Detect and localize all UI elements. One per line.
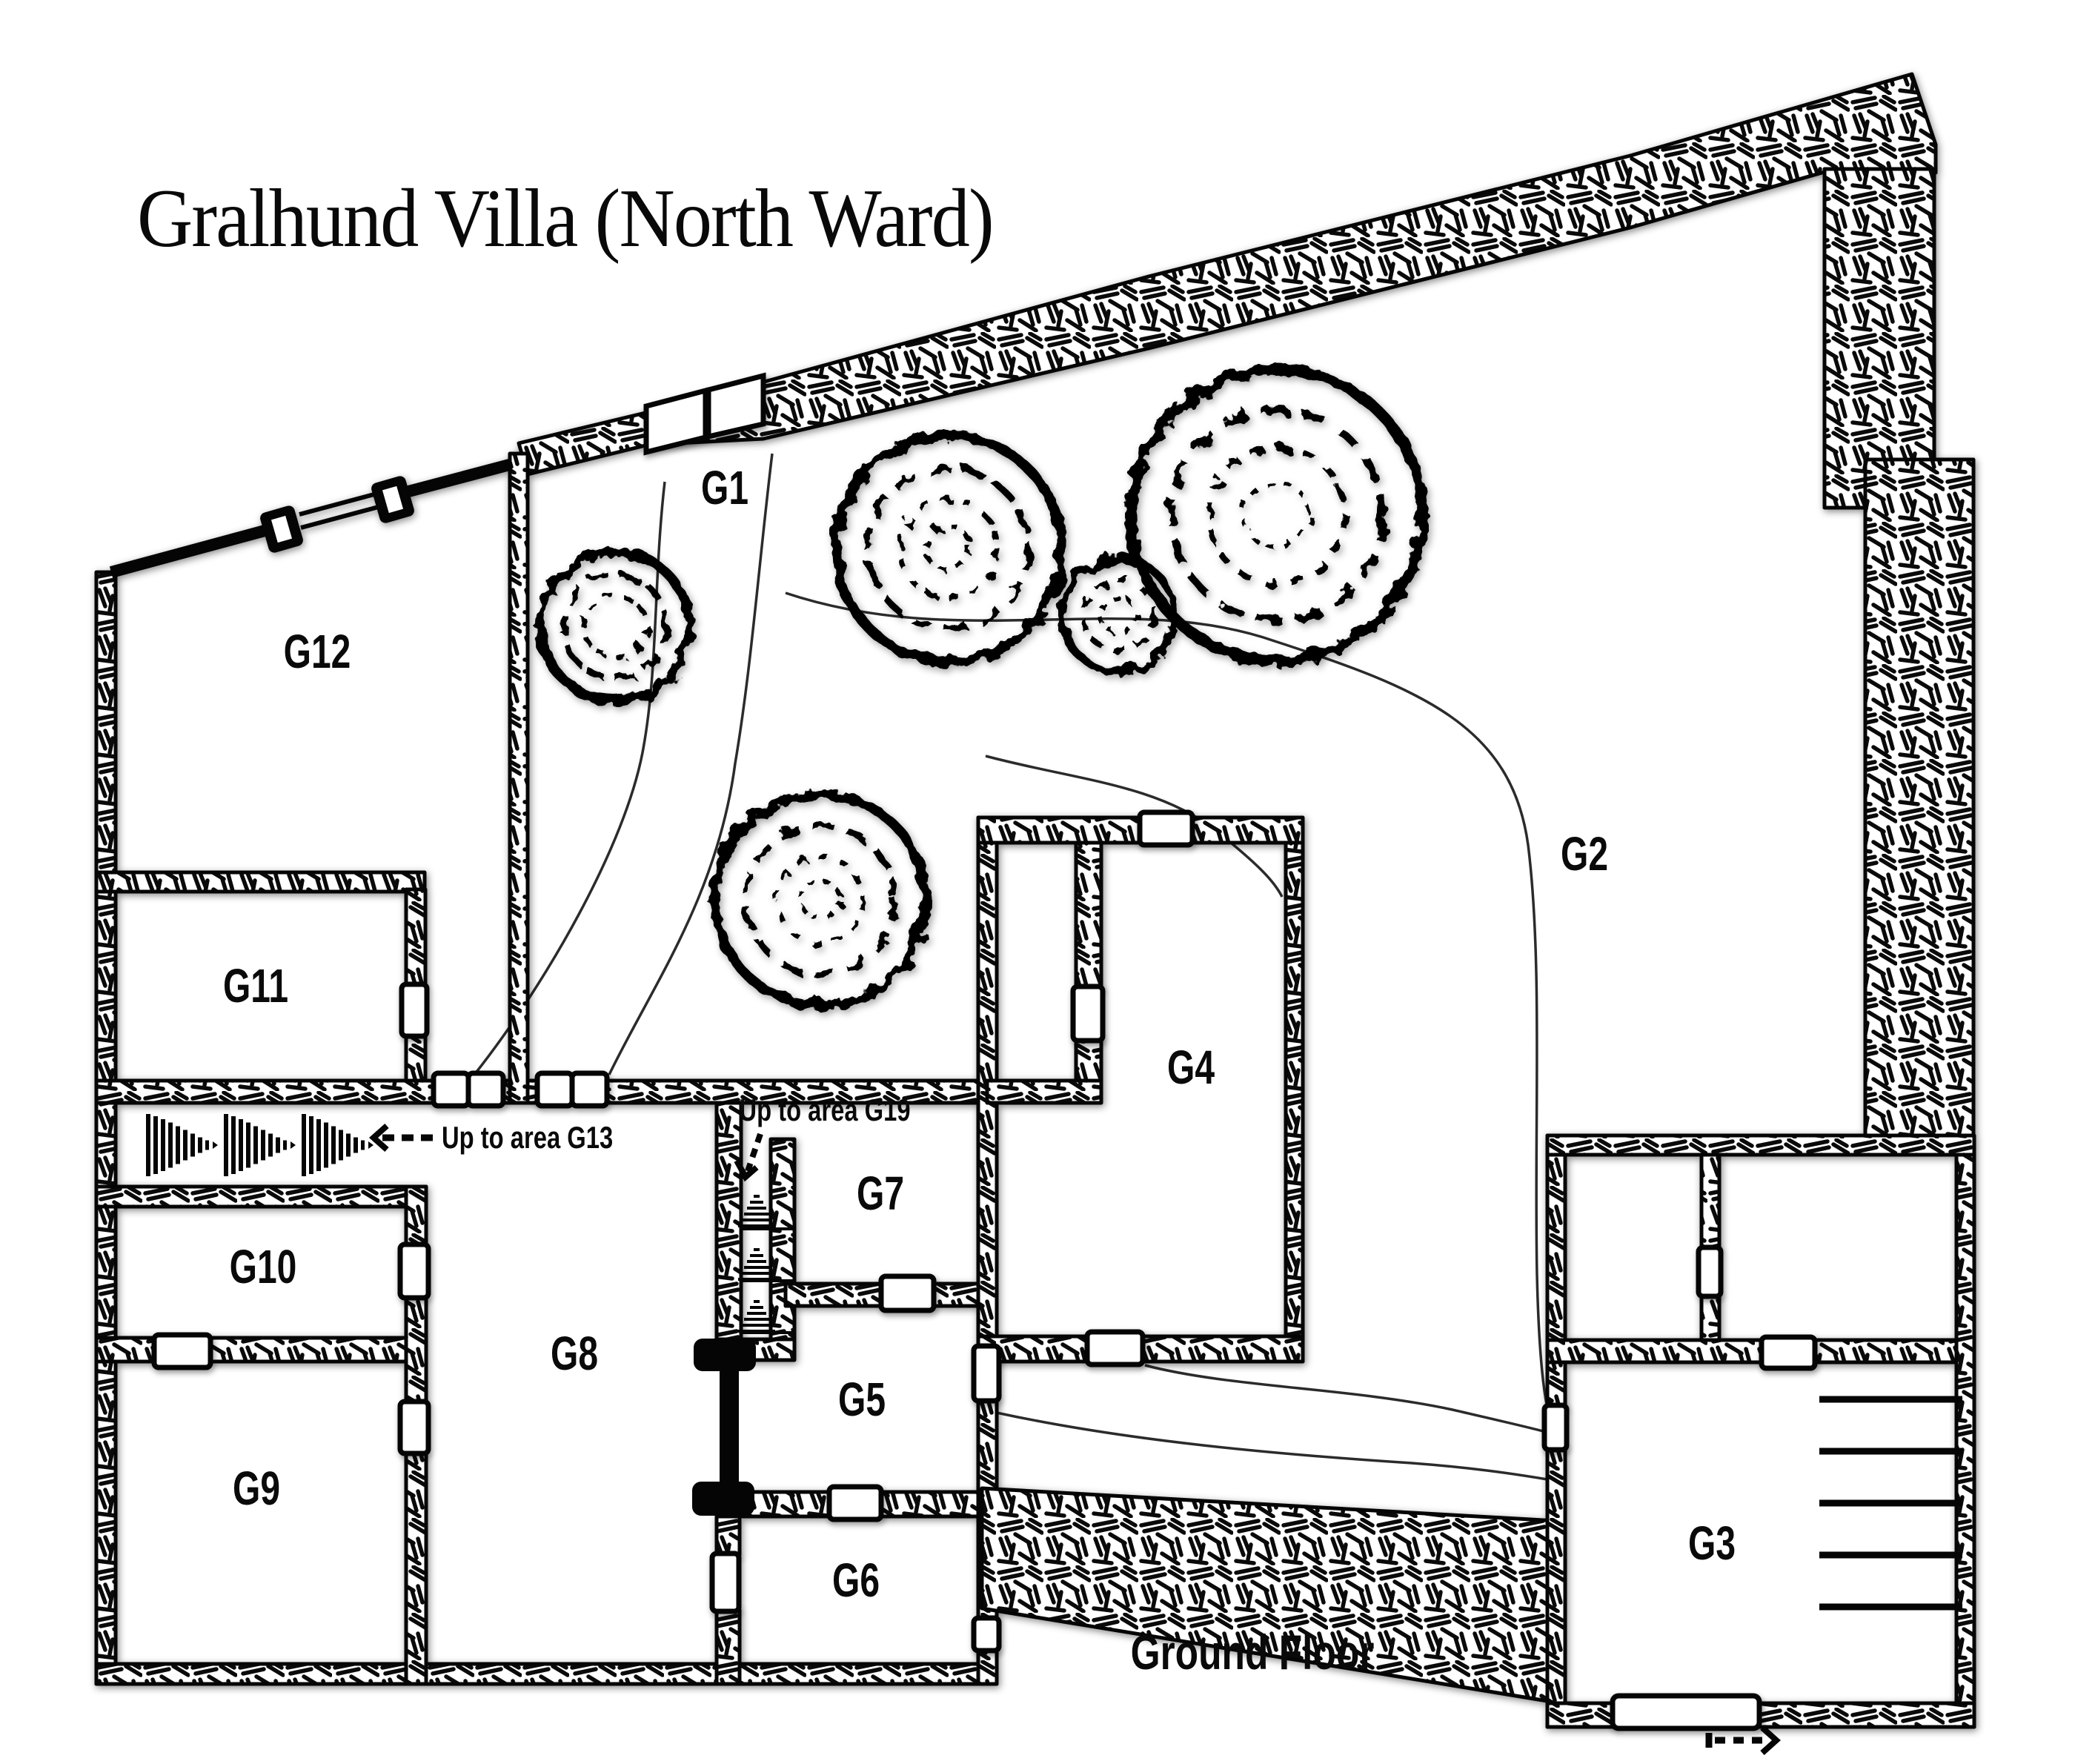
door-g4-south (1087, 1332, 1143, 1365)
door-garden-corridor (537, 1073, 572, 1106)
tree-icon (541, 552, 689, 700)
door-g9 (400, 1402, 428, 1453)
door-g5-g6 (829, 1487, 881, 1519)
door-g3-rooms (1699, 1247, 1721, 1296)
wall-g6-west (717, 1516, 740, 1555)
door-g11 (402, 984, 427, 1036)
room-label-g6: G6 (832, 1554, 880, 1606)
wall-g7-g5 (786, 1284, 883, 1306)
garden-fence (111, 463, 515, 572)
door-g6-east (974, 1618, 999, 1651)
wall-g10-g9 (210, 1338, 426, 1362)
door-garden-corridor (468, 1073, 503, 1106)
wall-g3-west (1547, 1447, 1565, 1727)
wall-g3-west (1547, 1135, 1565, 1408)
wall-g5-g6 (880, 1492, 987, 1516)
floor-caption: Ground Floor (1131, 1625, 1375, 1680)
room-label-g3: G3 (1688, 1516, 1736, 1569)
room-label-g10: G10 (230, 1240, 297, 1293)
outer-wall-east (1825, 169, 1934, 508)
wall-g3-south (1758, 1703, 1974, 1727)
wall-g3-rooms-south (1813, 1340, 1974, 1362)
wall-garden-west (510, 454, 528, 1103)
wall-g10-g9 (96, 1338, 154, 1362)
wall-g4-north (978, 818, 1141, 843)
room-label-g11: G11 (223, 959, 288, 1012)
tree-icon (1062, 559, 1175, 672)
wall-g3-rooms-south (1547, 1340, 1764, 1362)
wall-shaft-west (717, 1103, 741, 1356)
tree-icon (836, 436, 1061, 661)
wall-g12-g11 (96, 872, 425, 892)
wall-g4-closet (1076, 1038, 1101, 1081)
room-label-g7: G7 (857, 1167, 904, 1219)
wall-g3-south (1547, 1703, 1616, 1727)
wall-g10-g8 (406, 1298, 426, 1402)
walls (96, 74, 1974, 1727)
arrow-to-g13 (373, 1126, 434, 1150)
outer-wall-east (1865, 460, 1973, 1137)
wall-g10-g8 (406, 1187, 426, 1244)
door-g6-west (712, 1554, 739, 1611)
wall-g3-rooms-divider (1701, 1295, 1719, 1340)
room-label-g8: G8 (551, 1327, 598, 1379)
door-garden-corridor (572, 1073, 607, 1106)
tree-icon (1132, 370, 1422, 660)
room-label-g1: G1 (701, 461, 748, 514)
wall-house-east (978, 1649, 997, 1684)
house-south-wall (96, 1664, 997, 1684)
wall-g3-north (1547, 1135, 1974, 1155)
gate-post-icon (370, 474, 416, 524)
path-line (1145, 1365, 1546, 1432)
wall-g11-east (406, 1036, 425, 1081)
path-line (997, 1413, 1547, 1479)
door-g3-south (1613, 1696, 1759, 1728)
room-label-g2: G2 (1561, 827, 1608, 880)
outer-wall-west (96, 572, 116, 1684)
annotation-up-g13: Up to area G13 (442, 1120, 613, 1155)
door-g7-g5 (881, 1276, 934, 1310)
wall-g4-east (1286, 843, 1303, 1362)
wall-g4-closet (1076, 843, 1101, 989)
main-gate-door (708, 376, 763, 437)
door-g5-east (974, 1346, 999, 1401)
floor-plan-map: Gralhund Villa (North Ward) G1 G2 G3 G4 … (0, 0, 2075, 1764)
wall-g9-g8 (406, 1453, 426, 1684)
tree-icon (715, 795, 926, 1005)
map-title: Gralhund Villa (North Ward) (137, 173, 993, 265)
room-label-g4: G4 (1167, 1041, 1215, 1093)
room-label-g9: G9 (233, 1462, 280, 1514)
g3-stairs (1819, 1399, 1962, 1607)
gate-post-icon (259, 504, 305, 554)
wall-shaft-east (771, 1139, 794, 1339)
wall-corridor-g10 (96, 1187, 426, 1207)
stairs-to-g13 (146, 1114, 373, 1176)
wall-g4-south (1141, 1336, 1303, 1362)
wall-g11-corridor (96, 1081, 434, 1103)
wall-g11-east (406, 889, 425, 984)
door-g3-rooms-south (1762, 1337, 1815, 1368)
wall-g6-west (717, 1610, 740, 1684)
door-g4-north (1140, 812, 1192, 845)
room-label-g12: G12 (284, 625, 351, 677)
wall-g5-g6 (741, 1492, 831, 1516)
barred-passage-icon (692, 1339, 756, 1516)
door-g10-g9 (154, 1335, 210, 1367)
wall-g4-closet-south (987, 1081, 1101, 1103)
wall-g4-north (1191, 818, 1303, 843)
room-label-g5: G5 (838, 1373, 886, 1425)
wall-g3-east (1956, 1155, 1974, 1727)
door-g3-west (1544, 1405, 1567, 1450)
door-g10 (400, 1244, 428, 1298)
door-garden-corridor (434, 1073, 468, 1106)
wall-g3-rooms-divider (1701, 1155, 1719, 1249)
annotation-up-g19: Up to area G19 (739, 1092, 910, 1127)
exit-arrow-icon (1709, 1728, 1776, 1753)
door-g4-closet (1073, 987, 1103, 1041)
